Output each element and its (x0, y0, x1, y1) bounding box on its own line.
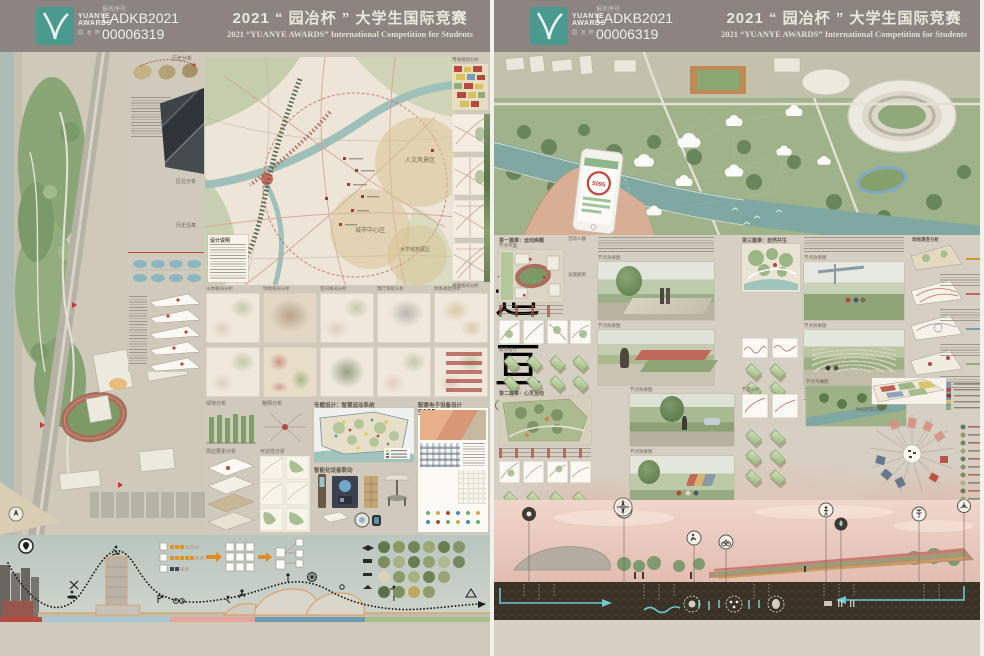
logo-sub: 园 冶 杯 (78, 29, 101, 36)
map-zone-2: 城市中心区 (355, 228, 385, 234)
access-map-sketches (260, 456, 310, 532)
site-section (494, 500, 984, 625)
analysis-map-3b (320, 347, 374, 397)
canopy-building (802, 69, 850, 95)
location-analysis-label: 区位分析 (176, 180, 196, 185)
app-ui-panel: 5095 (418, 408, 488, 532)
node-render-label-2: 节点效果图 (598, 324, 621, 329)
node-render-label-1: 节点效果图 (598, 256, 621, 261)
evolution-label: 历史沿革 (176, 224, 196, 229)
road-evolution-maps (452, 114, 488, 282)
context-layers-label: 周边要素分析 (206, 450, 236, 455)
header-left: YUANYEAWARDS 园 冶 杯 报名序号: LADKB2021000063… (0, 0, 490, 52)
red-text-blocks (446, 352, 482, 392)
grid-title-4: 慢行系统分析 (377, 287, 404, 292)
reg-number: LADKB202100006319 (102, 10, 179, 42)
phase-notes (129, 296, 147, 366)
phase-note-2 (940, 309, 982, 321)
logo-mark-icon (530, 7, 568, 45)
map-zone-1: 人文风景区 (405, 158, 435, 164)
crowd-label: 活动人群 (568, 237, 586, 242)
roadnet-radial-diagram (262, 407, 308, 447)
module-label-1: 模块设计 (499, 348, 517, 353)
aerial-rendering: 5095 (494, 52, 984, 235)
history-analysis-label: 历史分析 (172, 57, 192, 62)
analysis-map-4b (377, 347, 431, 397)
panorama-section (0, 535, 490, 622)
stream-sketch-boxes (742, 338, 798, 358)
reg-number: LADKB202100006319 (596, 10, 673, 42)
title-en: 2021 “YUANYE AWARDS” International Compe… (704, 29, 984, 39)
right-edge (980, 0, 984, 656)
access-analysis-label: 可达性分析 (260, 450, 285, 455)
node-description-1 (598, 237, 714, 253)
history-timeline-strip (128, 232, 204, 253)
board-gap (490, 0, 494, 656)
china-location-maps (128, 56, 205, 94)
site-evolution-diagrams (148, 292, 204, 372)
node-plan-label: 节点平面 (499, 244, 517, 249)
chapter-2-title: 第二篇章：心灵互动 (499, 390, 544, 397)
grid-title-1: 山体格局分析 (206, 287, 233, 292)
landuse-color-bar (0, 617, 490, 622)
node-description-3 (804, 237, 904, 253)
ferris-wheel-icon (308, 573, 317, 582)
facility-label: 设施图例 (568, 273, 586, 278)
analysis-map-4a (377, 293, 431, 343)
node-analysis-label: 节点分析 (742, 388, 760, 393)
planting-wheel (866, 412, 958, 496)
analysis-map-2b (263, 347, 317, 397)
design-note-text (210, 244, 246, 279)
node-render-label-6: 节点效果图 (630, 450, 653, 455)
chapter-3-title: 第三篇章：自然共生 (742, 237, 787, 244)
smart-sports-plan (314, 408, 414, 462)
node-plan-1 (499, 250, 563, 302)
map-zone-3: 大学城拓展区 (400, 248, 430, 253)
analysis-map-3a (320, 293, 374, 343)
phase-note-1 (940, 274, 982, 286)
landuse-inset-label: 用地规划分析 (452, 58, 479, 63)
play-tree (638, 460, 660, 484)
render-street (630, 394, 734, 446)
render-figures (660, 288, 670, 304)
soil-section (494, 582, 984, 620)
street-tree (660, 396, 684, 422)
cyclist-figure (620, 348, 629, 368)
poster-canvas: 历史分析 区位分析 历史沿革 (0, 0, 984, 656)
logo-sub: 园 冶 杯 (572, 29, 595, 36)
street-figure (682, 416, 687, 430)
grid-title-3: 空间格局分析 (320, 287, 347, 292)
phases-label: 场地演变分析 (912, 237, 939, 243)
title-en: 2021 “YUANYE AWARDS” International Compe… (210, 29, 490, 39)
board-left: 历史分析 区位分析 历史沿革 (0, 0, 490, 656)
render-cyclist (598, 330, 714, 385)
yuanye-logo (36, 7, 74, 45)
meadow-figures (844, 296, 866, 304)
app-icon-rows (420, 443, 460, 467)
smart-devices (314, 472, 414, 532)
aerial-node-label: 节点鸟瞰图 (806, 380, 829, 385)
plan-legend-lines (499, 305, 563, 317)
path-cyclists (824, 362, 840, 374)
hydrology-diagrams (128, 256, 205, 290)
node-plan-2 (499, 397, 591, 445)
app-calendar-grid (458, 470, 486, 504)
analysis-sketch-pair (742, 394, 798, 418)
title-cn: 2021 “ 园冶杯 ” 大学生国际竞赛 (709, 7, 979, 28)
landuse-inset-map (452, 64, 488, 110)
render-walkway (598, 262, 714, 320)
green-bar-chart (206, 409, 256, 447)
grid-title-2: 场地格局分析 (263, 287, 290, 292)
green-analysis-label: 绿地分析 (206, 402, 226, 407)
module-iso (745, 429, 762, 446)
plan-legend-lines-2 (499, 448, 591, 458)
planting-legend (946, 382, 982, 410)
node-sketches-2 (499, 461, 591, 483)
compass-rose (612, 496, 634, 518)
plant-species-list (960, 424, 982, 502)
analysis-map-1a (206, 293, 260, 343)
app-notes (463, 443, 485, 467)
design-note-title: 设计说明 (210, 237, 230, 244)
planting-phase-plan (872, 378, 946, 404)
node-render-label-5: 节点效果图 (630, 388, 653, 393)
grid-title-5: 体系规划分析 (434, 287, 461, 292)
node-render-label-4: 节点效果图 (804, 324, 827, 329)
yuanye-logo (530, 7, 568, 45)
render-terrace-path (804, 330, 904, 385)
node-render-label-3: 节点效果图 (804, 256, 827, 261)
header-right: YUANYEAWARDS 园 冶 杯 报名序号: LADKB2021000063… (494, 0, 984, 52)
render-bridge-meadow (804, 262, 904, 320)
bridge-structure (818, 266, 864, 274)
analysis-map-5a (434, 293, 488, 343)
board-right: 5095 第一篇章：运动唤醒 节点平面 模块设计 活动人群 设施图例 节点效果图 (494, 0, 984, 656)
render-lawn (640, 360, 718, 372)
app-color-dots (422, 508, 484, 528)
play-figures (674, 488, 700, 498)
analysis-map-1b (206, 347, 260, 397)
app-hero-image (420, 410, 486, 440)
street-car (704, 418, 720, 425)
render-planter (634, 350, 711, 360)
context-axon-layers (204, 456, 256, 532)
node-plan-3 (742, 244, 800, 292)
render-tree (616, 266, 642, 296)
node-sketches-1 (499, 320, 591, 344)
title-cn: 2021 “ 园冶杯 ” 大学生国际竞赛 (215, 7, 485, 28)
analysis-map-2a (263, 293, 317, 343)
stadium (848, 80, 956, 152)
bridge-pylon (834, 264, 836, 284)
phase-note-3 (940, 344, 982, 356)
module-iso (769, 429, 786, 446)
play-structure (686, 474, 716, 486)
design-note-panel: 设计说明 (208, 235, 248, 282)
location-pin-icon (19, 539, 33, 553)
logo-mark-icon (36, 7, 74, 45)
